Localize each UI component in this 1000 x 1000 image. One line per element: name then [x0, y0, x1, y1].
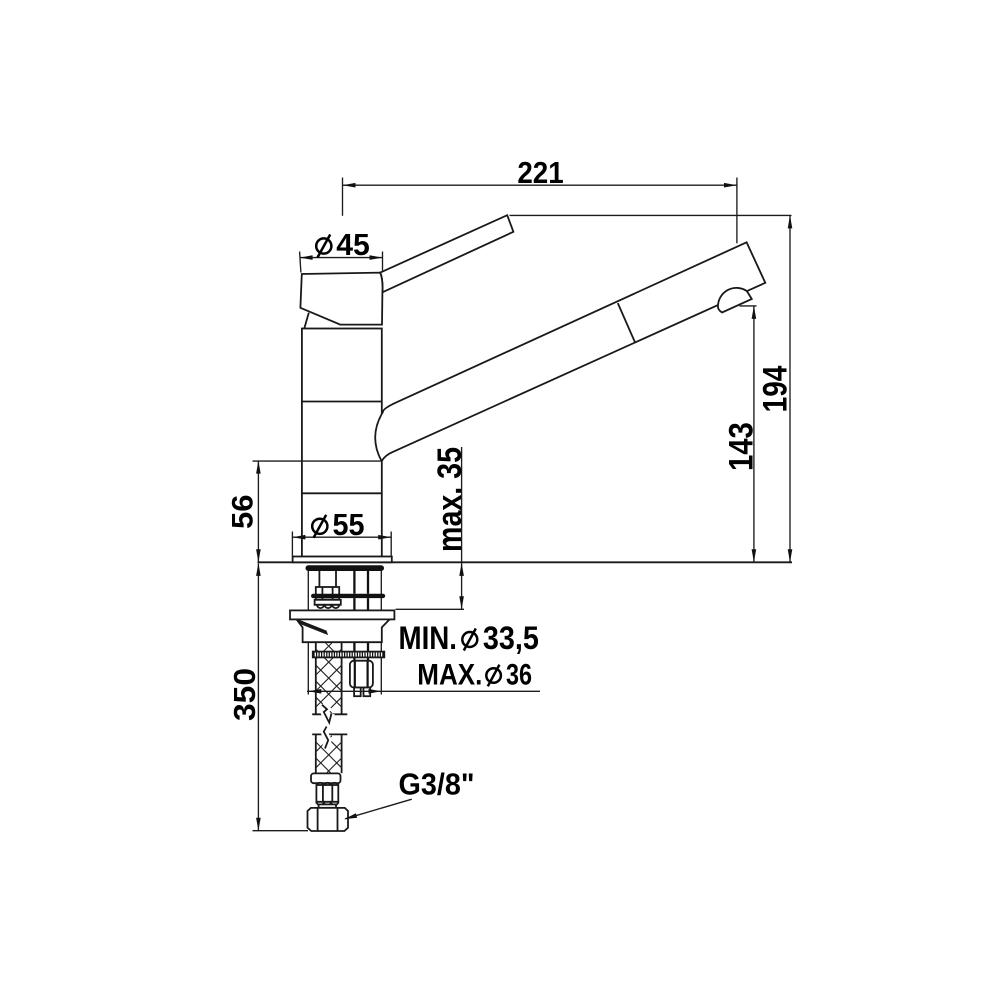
- svg-text:MAX.: MAX.: [417, 659, 482, 692]
- svg-text:45: 45: [336, 227, 370, 262]
- svg-text:max. 35: max. 35: [431, 447, 469, 552]
- svg-text:350: 350: [228, 668, 262, 721]
- svg-text:MIN.: MIN.: [399, 620, 458, 656]
- svg-text:33,5: 33,5: [483, 620, 539, 656]
- svg-text:56: 56: [226, 494, 259, 529]
- svg-text:G3/8": G3/8": [399, 767, 475, 802]
- svg-text:221: 221: [517, 155, 563, 190]
- svg-text:36: 36: [506, 659, 532, 692]
- svg-text:143: 143: [723, 422, 761, 471]
- svg-text:194: 194: [756, 366, 794, 413]
- svg-text:55: 55: [333, 507, 365, 542]
